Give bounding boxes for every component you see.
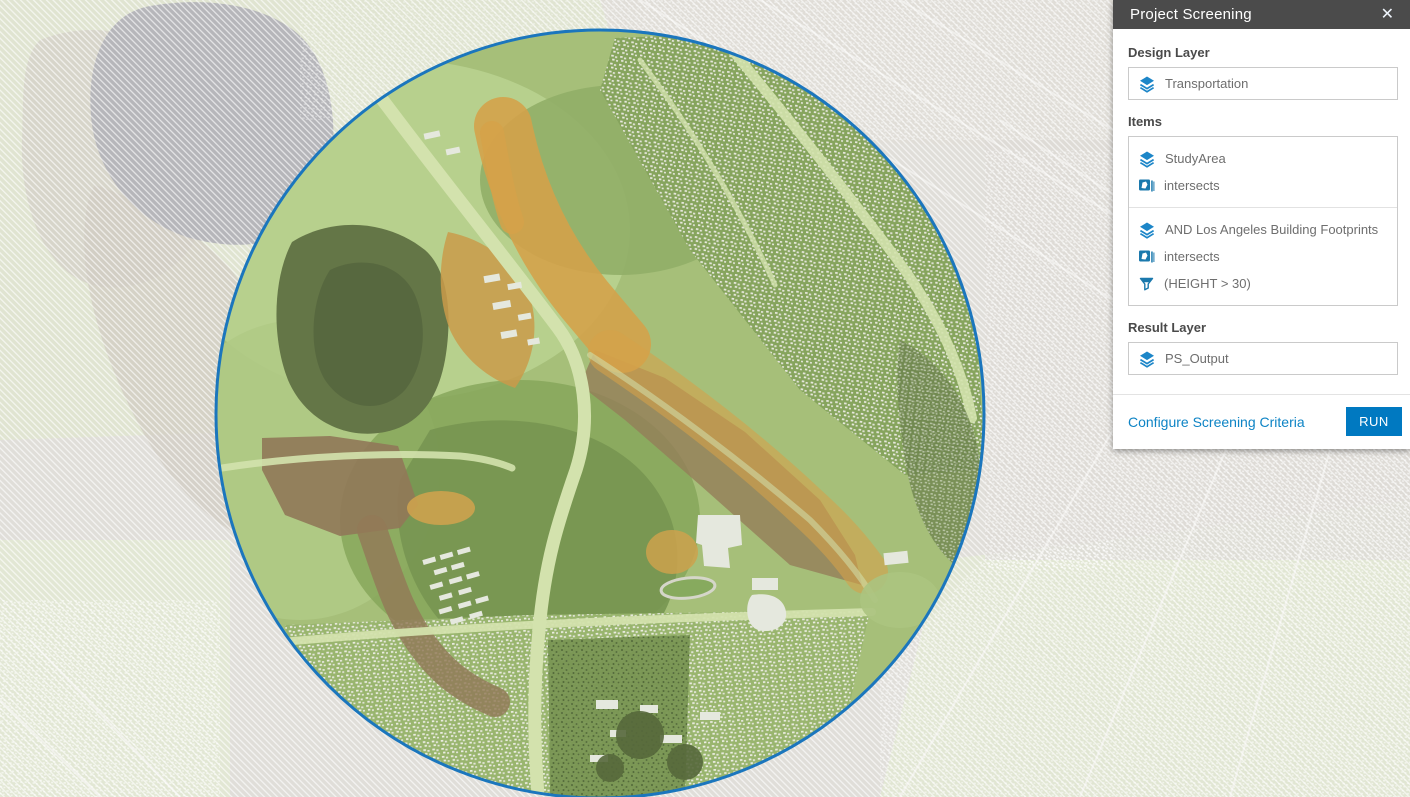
app-window: Project Screening ✕ Design Layer Transpo… <box>0 0 1410 797</box>
item-layer-name: AND Los Angeles Building Footprints <box>1165 222 1378 237</box>
layers-icon <box>1138 350 1156 368</box>
item-operation: intersects <box>1164 249 1220 264</box>
items-box[interactable]: StudyArea intersects <box>1128 136 1398 306</box>
intersect-icon <box>1138 248 1155 265</box>
run-button[interactable]: RUN <box>1346 407 1402 436</box>
close-icon[interactable]: ✕ <box>1375 5 1400 25</box>
result-layer-field[interactable]: PS_Output <box>1128 342 1398 375</box>
project-screening-panel: Project Screening ✕ Design Layer Transpo… <box>1113 0 1410 449</box>
item-filter-row: (HEIGHT > 30) <box>1129 270 1397 297</box>
result-layer-value: PS_Output <box>1165 351 1229 366</box>
item-layer-row: StudyArea <box>1129 145 1397 172</box>
item-operation: intersects <box>1164 178 1220 193</box>
design-layer-label: Design Layer <box>1128 45 1398 60</box>
layers-icon <box>1138 221 1156 239</box>
item-layer-name: StudyArea <box>1165 151 1226 166</box>
item-layer-row: AND Los Angeles Building Footprints <box>1129 216 1397 243</box>
layers-icon <box>1138 150 1156 168</box>
configure-screening-criteria-link[interactable]: Configure Screening Criteria <box>1128 414 1305 430</box>
result-layer-label: Result Layer <box>1128 320 1398 335</box>
panel-title: Project Screening <box>1130 6 1252 23</box>
item-operation-row: intersects <box>1129 243 1397 270</box>
design-layer-field[interactable]: Transportation <box>1128 67 1398 100</box>
items-divider <box>1129 207 1397 208</box>
intersect-icon <box>1138 177 1155 194</box>
panel-header: Project Screening ✕ <box>1113 0 1410 29</box>
items-label: Items <box>1128 114 1398 129</box>
design-layer-value: Transportation <box>1165 76 1248 91</box>
filter-icon <box>1138 275 1155 292</box>
layers-icon <box>1138 75 1156 93</box>
panel-body: Design Layer Transportation Items <box>1113 29 1410 375</box>
item-filter-expression: (HEIGHT > 30) <box>1164 276 1251 291</box>
panel-footer: Configure Screening Criteria RUN <box>1113 394 1410 449</box>
item-operation-row: intersects <box>1129 172 1397 199</box>
